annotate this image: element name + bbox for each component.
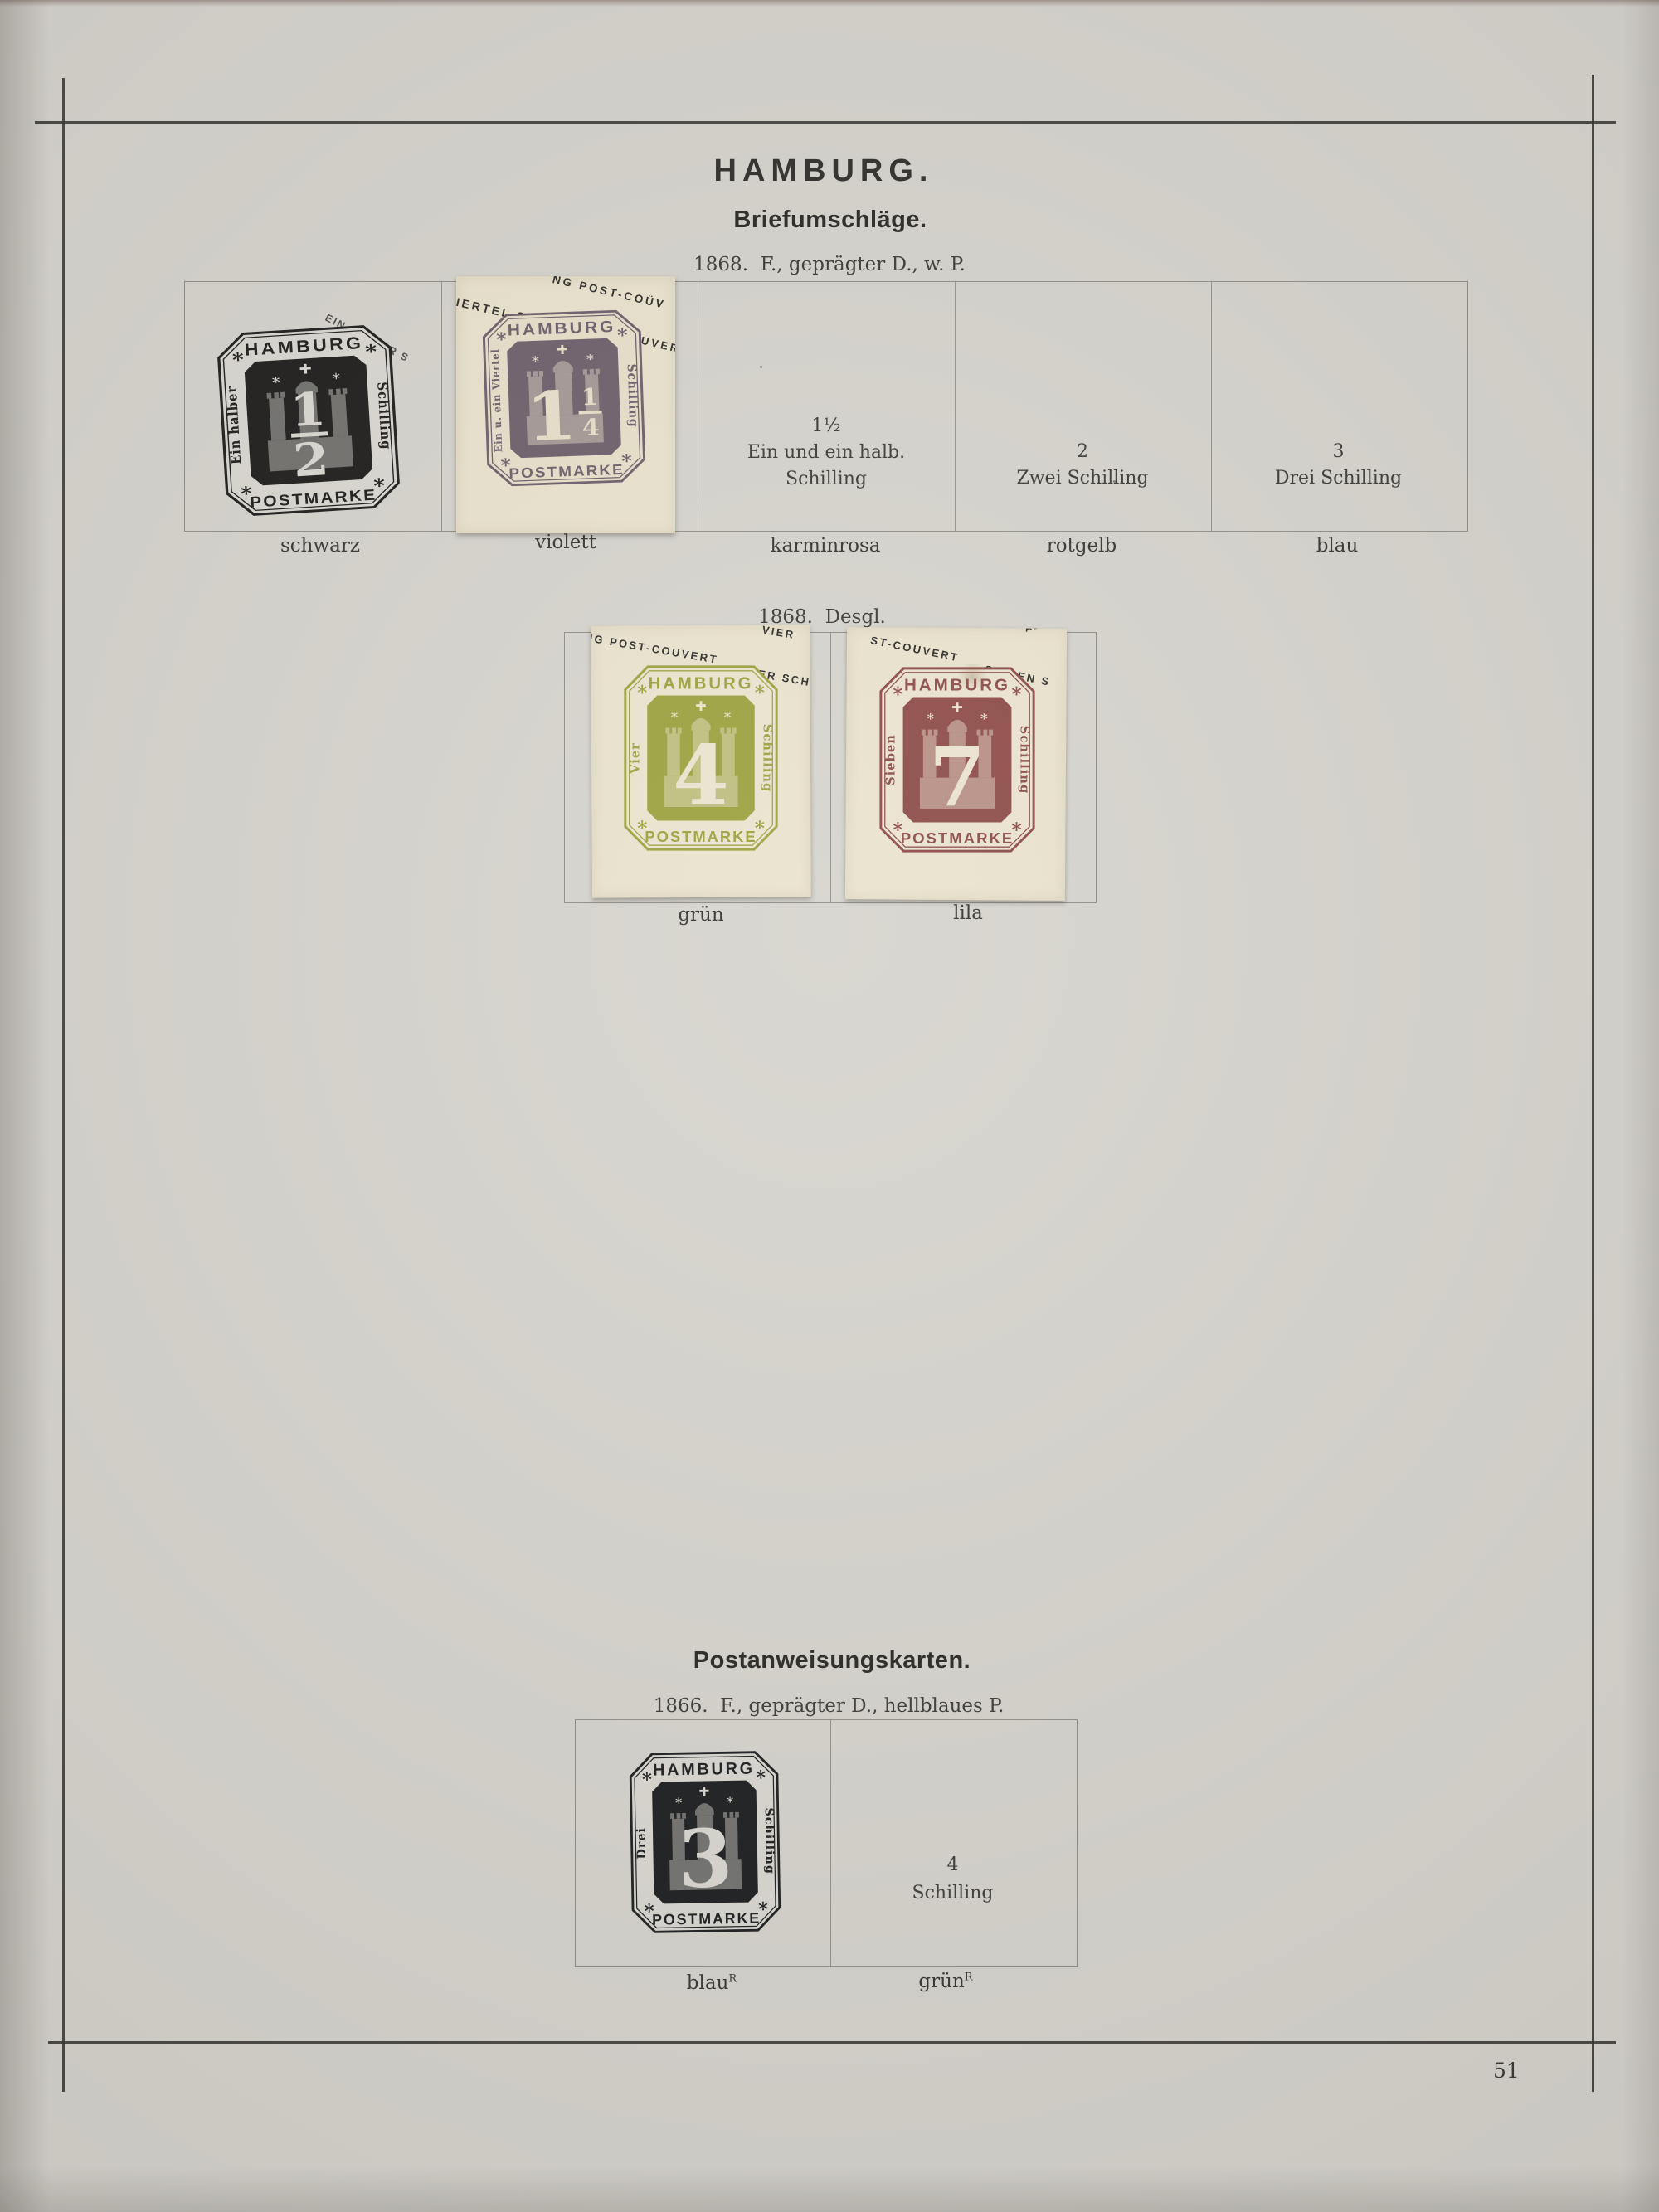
section-heading-postanweisungskarten: Postanweisungskarten.: [693, 1647, 971, 1675]
svg-text:POSTMARKE: POSTMARKE: [901, 829, 1014, 847]
overprint-vier-fragment: VIER: [761, 625, 796, 641]
svg-text:Schilling: Schilling: [624, 363, 640, 427]
color-label-schwarz: schwarz: [280, 535, 360, 557]
cell-value-line: Zwei Schilling: [954, 465, 1211, 492]
color-label-blau: blau: [1316, 535, 1359, 557]
footnote-mark: R: [965, 1971, 973, 1983]
color-label-text: grün: [918, 1971, 964, 1992]
svg-text:Schilling: Schilling: [761, 724, 775, 793]
table-divider: [830, 1720, 831, 1966]
svg-text:*: *: [980, 712, 988, 727]
stamp-violett-1-1-4-schilling: * * 114 HAMBURG POSTMARKE Ein u. ein Vie…: [478, 306, 649, 491]
svg-text:*: *: [496, 328, 507, 350]
frame-top-rule: [35, 121, 1616, 124]
overprint-post-couvert: NG POST-COÜV: [552, 276, 667, 311]
dust-speck: [1113, 480, 1116, 483]
svg-text:*: *: [675, 1795, 682, 1811]
svg-text:*: *: [1011, 683, 1021, 706]
svg-text:1: 1: [525, 376, 578, 456]
color-label-lila: lila: [953, 902, 983, 924]
svg-text:*: *: [758, 1899, 768, 1921]
svg-text:*: *: [893, 683, 902, 706]
color-label-gruen: grün: [678, 904, 723, 926]
table-divider: [955, 282, 956, 531]
cell-value-rotgelb: 2 Zwei Schilling: [954, 439, 1211, 492]
section-heading-briefumschlaege: Briefumschläge.: [733, 207, 927, 234]
svg-text:*: *: [621, 450, 632, 472]
cell-value-blau: 3 Drei Schilling: [1210, 439, 1467, 492]
cell-value-gruen-4: 4 Schilling: [829, 1851, 1076, 1908]
cell-value-line: Ein und ein halb.: [698, 440, 955, 466]
svg-text:*: *: [645, 1901, 654, 1923]
svg-text:*: *: [272, 375, 281, 391]
svg-text:*: *: [755, 681, 765, 704]
cell-value-line: 4: [829, 1851, 1076, 1879]
svg-text:*: *: [927, 712, 934, 727]
stamp-schwarz-half-schilling: * * 12 HAMBURG POSTMARKE Ein halber Schi…: [212, 319, 406, 521]
frame-bottom-rule: [48, 2041, 1616, 2044]
svg-text:*: *: [617, 324, 628, 346]
color-label-gruen-r: grünR: [918, 1971, 972, 1992]
svg-text:*: *: [365, 340, 377, 363]
svg-text:*: *: [642, 1769, 652, 1791]
overprint-post-couvert: NG POST-COUVERT: [591, 631, 719, 666]
cell-value-line: 3: [1210, 439, 1467, 465]
svg-text:Sieben: Sieben: [884, 734, 898, 785]
svg-text:*: *: [500, 455, 511, 476]
svg-text:4: 4: [581, 414, 600, 441]
svg-text:2: 2: [292, 431, 331, 487]
svg-text:*: *: [231, 348, 244, 372]
frame-left-rule: [62, 78, 65, 2092]
svg-text:*: *: [332, 372, 341, 387]
svg-text:4: 4: [673, 727, 728, 824]
stamp-drei-3-schilling: * * 3 HAMBURG POSTMARKE Drei Schilling *…: [625, 1747, 785, 1937]
svg-text:*: *: [671, 710, 679, 726]
svg-text:*: *: [532, 353, 539, 368]
dust-speck: [760, 366, 762, 368]
cell-value-line: 1½: [698, 413, 955, 440]
color-label-karminrosa: karminrosa: [771, 535, 881, 557]
color-label-blau-r: blauR: [687, 1972, 737, 1994]
cell-value-line: Schilling: [829, 1879, 1076, 1908]
table-divider: [830, 633, 831, 902]
page-number: 51: [1493, 2059, 1520, 2083]
svg-text:Vier: Vier: [628, 742, 642, 775]
svg-text:1: 1: [581, 383, 599, 411]
paper-stain: [954, 664, 990, 688]
svg-text:Schilling: Schilling: [1017, 726, 1031, 795]
svg-text:*: *: [637, 816, 647, 839]
stamp-gruen-4-schilling: * * 4 HAMBURG POSTMARKE Vier Schilling *…: [620, 662, 781, 854]
color-label-rotgelb: rotgelb: [1047, 535, 1117, 557]
table-divider: [1211, 282, 1212, 531]
svg-text:*: *: [586, 352, 594, 367]
cell-value-karminrosa: 1½ Ein und ein halb. Schilling: [698, 413, 955, 493]
svg-text:7: 7: [929, 730, 985, 825]
issue-line-1868: 1868. F., geprägter D., w. P.: [693, 254, 966, 275]
svg-text:POSTMARKE: POSTMARKE: [652, 1909, 761, 1928]
svg-text:*: *: [727, 1794, 733, 1810]
svg-text:*: *: [893, 818, 902, 841]
svg-text:HAMBURG: HAMBURG: [653, 1759, 755, 1779]
overprint-fragment: ABEI: [1023, 627, 1055, 634]
overprint-post-couvert: ST-COUVERT: [869, 634, 961, 664]
svg-text:*: *: [724, 710, 732, 726]
cell-value-line: 2: [954, 439, 1211, 465]
color-label-violett: violett: [535, 532, 596, 553]
cell-value-line: Drei Schilling: [1210, 465, 1467, 492]
svg-text:*: *: [637, 681, 647, 704]
footnote-mark: R: [728, 1972, 737, 1985]
issue-line-1866: 1866. F., geprägter D., hellblaues P.: [654, 1695, 1005, 1717]
svg-text:Schilling: Schilling: [762, 1807, 776, 1874]
page-title: HAMBURG.: [714, 153, 934, 189]
table-divider: [441, 282, 442, 531]
svg-text:*: *: [373, 474, 386, 498]
svg-text:*: *: [240, 482, 252, 505]
svg-text:*: *: [756, 1767, 766, 1789]
color-label-text: blau: [687, 1972, 729, 1994]
svg-text:*: *: [1011, 818, 1021, 841]
album-page-photo: HAMBURG. Briefumschläge. 1868. F., geprä…: [0, 0, 1659, 2212]
svg-text:POSTMARKE: POSTMARKE: [645, 828, 757, 845]
stamp-lila-7-schilling: * * 7 HAMBURG POSTMARKE Sieben Schilling…: [876, 664, 1039, 856]
svg-text:*: *: [755, 816, 765, 839]
svg-text:Drei: Drei: [635, 1827, 649, 1860]
svg-text:3: 3: [678, 1812, 733, 1906]
svg-text:1: 1: [289, 382, 328, 437]
cell-value-line: Schilling: [698, 466, 955, 493]
svg-text:HAMBURG: HAMBURG: [649, 673, 754, 693]
table-divider: [698, 282, 698, 531]
frame-right-rule: [1592, 75, 1594, 2092]
